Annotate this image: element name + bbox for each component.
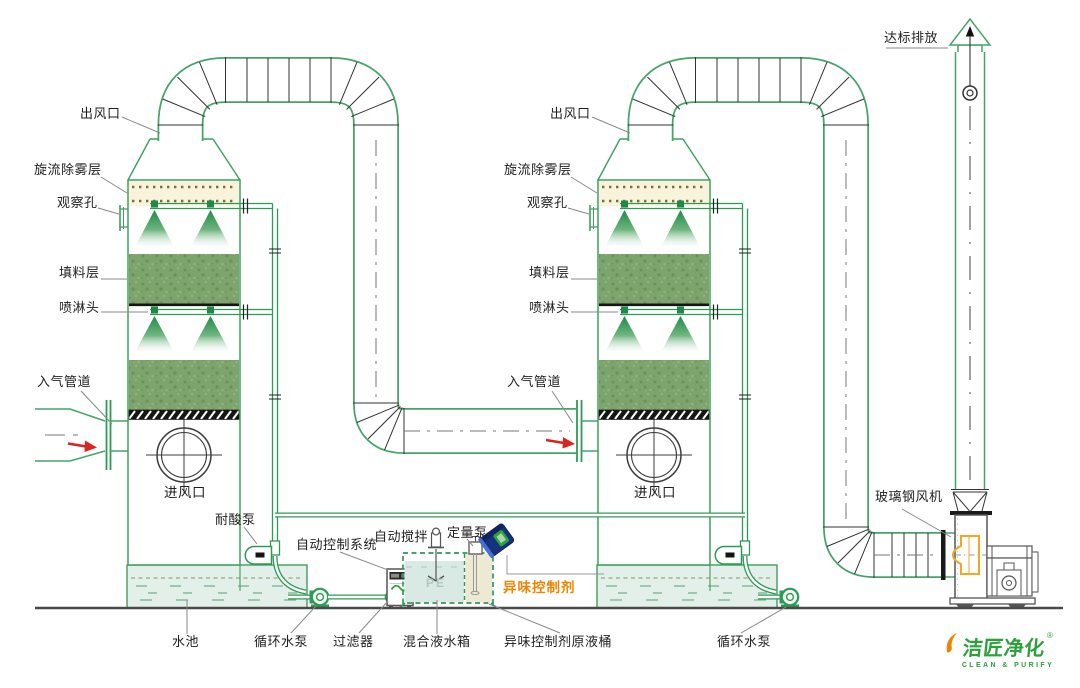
logo-brand-text: 洁匠净化 — [962, 632, 1047, 661]
barrel-shelf-line — [507, 555, 604, 574]
logo-mark-icon — [944, 632, 958, 654]
label-tower2-demister: 旋流除雾层 — [504, 163, 572, 177]
label-tower1-outlet: 出风口 — [80, 107, 121, 121]
tank-material-mark: PE — [426, 576, 446, 590]
label-circulating-pump-1: 循环水泵 — [254, 635, 308, 649]
mixing-tank — [399, 553, 497, 608]
label-water-pool: 水池 — [172, 635, 199, 649]
gas-inlet-duct-1 — [35, 400, 128, 470]
label-tower2-inspection-port: 观察孔 — [527, 196, 568, 210]
exhaust-stack — [950, 19, 990, 490]
label-frp-fan: 玻璃钢风机 — [875, 490, 943, 504]
label-tower1-inspection-port: 观察孔 — [57, 196, 98, 210]
logo-tagline: CLEAN & PURIFY — [944, 662, 1072, 669]
label-odor-agent: 异味控制剂 — [503, 581, 576, 596]
label-mixing-tank: 混合液水箱 — [403, 635, 471, 649]
label-tower1-air-inlet: 进风口 — [164, 486, 206, 501]
label-tower2-packing: 填料层 — [529, 266, 570, 280]
label-filter: 过滤器 — [333, 635, 374, 649]
label-tower2-gas-inlet-duct: 入气管道 — [507, 375, 561, 389]
brand-logo: 洁匠净化 ® CLEAN & PURIFY — [944, 632, 1072, 669]
label-tower2-air-inlet: 进风口 — [634, 486, 676, 501]
scrubber-tower-2 — [590, 139, 799, 608]
label-tower1-gas-inlet-duct: 入气管道 — [37, 375, 91, 389]
label-tower1-demister: 旋流除雾层 — [34, 163, 102, 177]
label-agent-barrel: 异味控制剂原液桶 — [504, 635, 612, 649]
process-diagram: 出风口 旋流除雾层 观察孔 填料层 喷淋头 入气管道 进风口 耐酸泵 自动控制系… — [0, 0, 1080, 688]
label-metering-pump: 定量泵 — [447, 526, 488, 540]
label-tower1-packing: 填料层 — [59, 266, 100, 280]
label-emission: 达标排放 — [884, 31, 938, 45]
label-tower2-outlet: 出风口 — [550, 107, 591, 121]
label-circulating-pump-2: 循环水泵 — [717, 635, 771, 649]
label-auto-stirrer: 自动搅拌 — [374, 530, 428, 544]
frp-fan — [950, 490, 1038, 609]
label-tower2-spray-nozzle: 喷淋头 — [529, 301, 570, 315]
logo-registered-mark: ® — [1047, 631, 1053, 640]
label-acid-pump: 耐酸泵 — [215, 513, 256, 527]
label-control-system: 自动控制系统 — [296, 538, 377, 552]
label-tower1-spray-nozzle: 喷淋头 — [59, 301, 100, 315]
